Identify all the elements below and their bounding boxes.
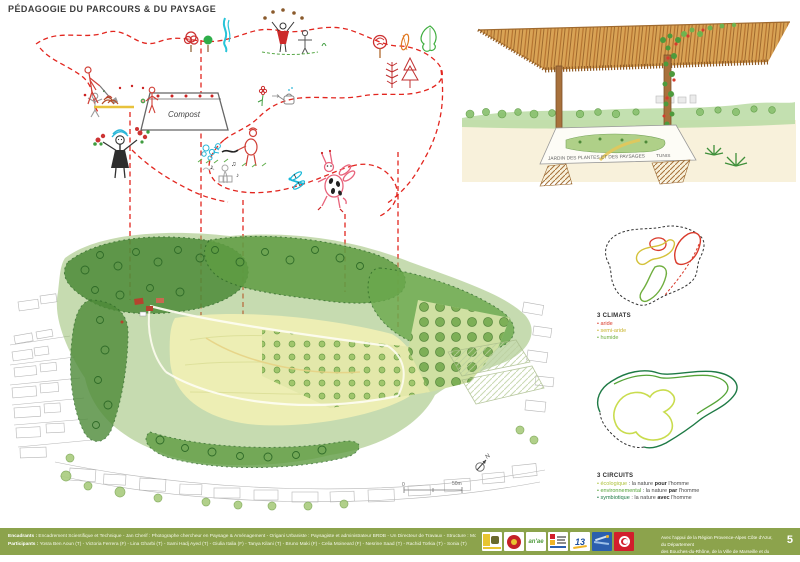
anae-logo-text: an'ae — [528, 539, 543, 545]
credits-line-2: Participants : Yosra Ben Aoun (T) - Vict… — [8, 541, 476, 549]
circuit-emphasis: pour — [655, 481, 667, 487]
circuit-mid: : la nature — [630, 495, 658, 501]
compost-label: Compost — [168, 110, 201, 119]
page-number: 5 — [787, 534, 793, 546]
legend-circuits-title: 3 CIRCUITS — [597, 473, 767, 480]
scale-start-label: 0 — [402, 482, 405, 488]
support-line-2: des Bouches-du-Rhône, de la Ville de Mar… — [661, 548, 773, 562]
thatched-roof — [478, 22, 790, 70]
north-label: N — [485, 453, 493, 461]
legend-climats-title: 3 CLIMATS — [597, 313, 717, 320]
board-artwork: Compost — [0, 0, 800, 555]
circuit-keyword: • environnemental — [597, 488, 641, 494]
music-note-icon: ♫ — [231, 161, 236, 168]
legend-item-humide: • humide — [597, 335, 717, 342]
credits-label: Encadrants : — [8, 534, 37, 539]
presentation-board: { "page": { "title": "PÉDAGOGIE DU PARCO… — [0, 0, 800, 555]
blue-hair-child-drawing — [93, 127, 150, 178]
music-note-icon: ♪ — [236, 173, 239, 179]
circuit-tail: l'homme — [667, 481, 689, 487]
north-arrow: N — [476, 453, 492, 471]
circuit-tail: l'homme — [670, 495, 692, 501]
winged-creature-drawing — [318, 150, 356, 212]
anae-logo: an'ae — [526, 532, 546, 551]
music-figure-drawing: ♪ ♫ ♪ — [203, 161, 239, 183]
masterplan: N 0 50m — [10, 233, 554, 510]
legend-climats: 3 CLIMATS • aride • semi-aride • humide — [597, 313, 717, 342]
credits-line-1: Encadrants : Encadrement Scientifique et… — [8, 533, 476, 541]
legend-circuits: 3 CIRCUITS • écologique : la nature pour… — [597, 473, 767, 502]
circuit-mid: : la nature — [627, 481, 655, 487]
perspective-sketch: JARDIN DES PLANTES ET DES PAYSAGES TUNIS — [462, 22, 796, 186]
region-paca-logo — [548, 532, 568, 551]
circuit-keyword: • symbiotique — [597, 495, 630, 501]
legend-item-symbiotique: • symbiotique : la nature avec l'homme — [597, 495, 767, 502]
legend-item-ecologique: • écologique : la nature pour l'homme — [597, 481, 767, 488]
trees-mid-drawing — [185, 18, 230, 52]
support-text: Avec l'appui de la Région Provence-Alpes… — [661, 534, 773, 562]
zone-humide — [640, 266, 666, 301]
climats-diagram — [606, 226, 704, 305]
credits-block: Encadrants : Encadrement Scientifique et… — [8, 533, 476, 549]
marseille-crest-logo — [504, 532, 524, 551]
dragonfly-drawing — [289, 170, 306, 190]
circuits-boundary-dashed — [600, 412, 644, 447]
cg13-logo: 13 — [570, 532, 590, 551]
circuit-tail: l'homme — [677, 488, 699, 494]
scale-end-label: 50m — [452, 481, 462, 487]
horizon-vegetation — [462, 94, 795, 129]
music-note-icon: ♪ — [210, 164, 214, 171]
footer-bar: Encadrants : Encadrement Scientifique et… — [0, 528, 800, 555]
credits-text: Yosra Ben Aoun (T) - Victoria Ferrera (F… — [38, 542, 466, 547]
table-city-label: TUNIS — [656, 153, 670, 159]
circuit-emphasis: par — [669, 488, 678, 494]
legend-item-environnemental: • environnemental : la nature par l'homm… — [597, 488, 767, 495]
circuit-ecologique-line — [614, 390, 675, 440]
trees-right-drawing — [374, 26, 437, 88]
circuit-environnemental-line — [614, 375, 728, 414]
partner-logos: an'ae 13 — [482, 532, 634, 551]
support-line-1: Avec l'appui de la Région Provence-Alpes… — [661, 534, 773, 548]
circuit-emphasis: avec — [657, 495, 669, 501]
city-silhouette — [656, 94, 696, 103]
zone-semi-aride — [637, 240, 675, 264]
legend-item-aride: • aride — [597, 321, 717, 328]
pergola-post-left — [556, 66, 562, 132]
zone-aride-large — [675, 233, 701, 265]
circuit-mid: : la nature — [641, 488, 669, 494]
parcels — [448, 340, 544, 404]
tunisia-flag-logo — [614, 532, 634, 551]
municipal-logo — [482, 532, 502, 551]
credits-text: Encadrement Scientifique et Technique - … — [37, 534, 476, 539]
circuits-diagram — [598, 371, 737, 448]
legend-item-semi-aride: • semi-aride — [597, 328, 717, 335]
blue-crest-logo — [592, 532, 612, 551]
flower-can-drawing — [258, 86, 294, 106]
credits-label: Participants : — [8, 542, 38, 547]
circuit-keyword: • écologique — [597, 481, 627, 487]
